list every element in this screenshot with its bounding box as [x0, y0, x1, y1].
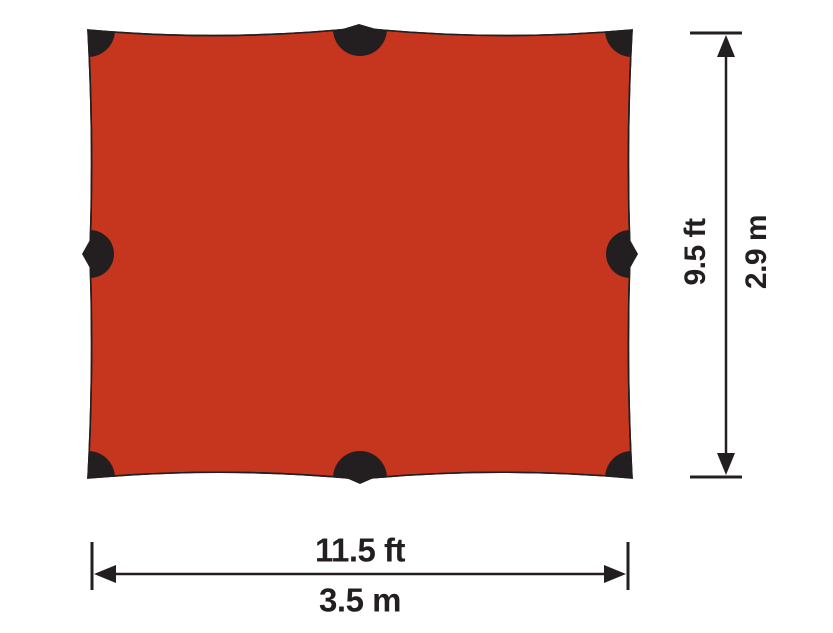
attachment-point-top-mid: [333, 2, 387, 56]
width-metric-label: 3.5 m: [319, 584, 401, 617]
tarp-body: [88, 28, 632, 479]
width-imperial-label: 11.5 ft: [315, 534, 405, 567]
height-metric-label: 2.9 m: [742, 215, 772, 289]
width-dimension-arrow-left-icon: [94, 565, 116, 583]
width-dimension-arrow-right-icon: [604, 565, 626, 583]
diagram-canvas: 11.5 ft 3.5 m 9.5 ft 2.9 m: [0, 0, 833, 633]
height-dimension-arrow-down-icon: [717, 453, 735, 475]
height-imperial-label: 9.5 ft: [681, 218, 711, 285]
tarp-dimension-diagram: [0, 0, 833, 633]
height-dimension-arrow-up-icon: [717, 35, 735, 57]
